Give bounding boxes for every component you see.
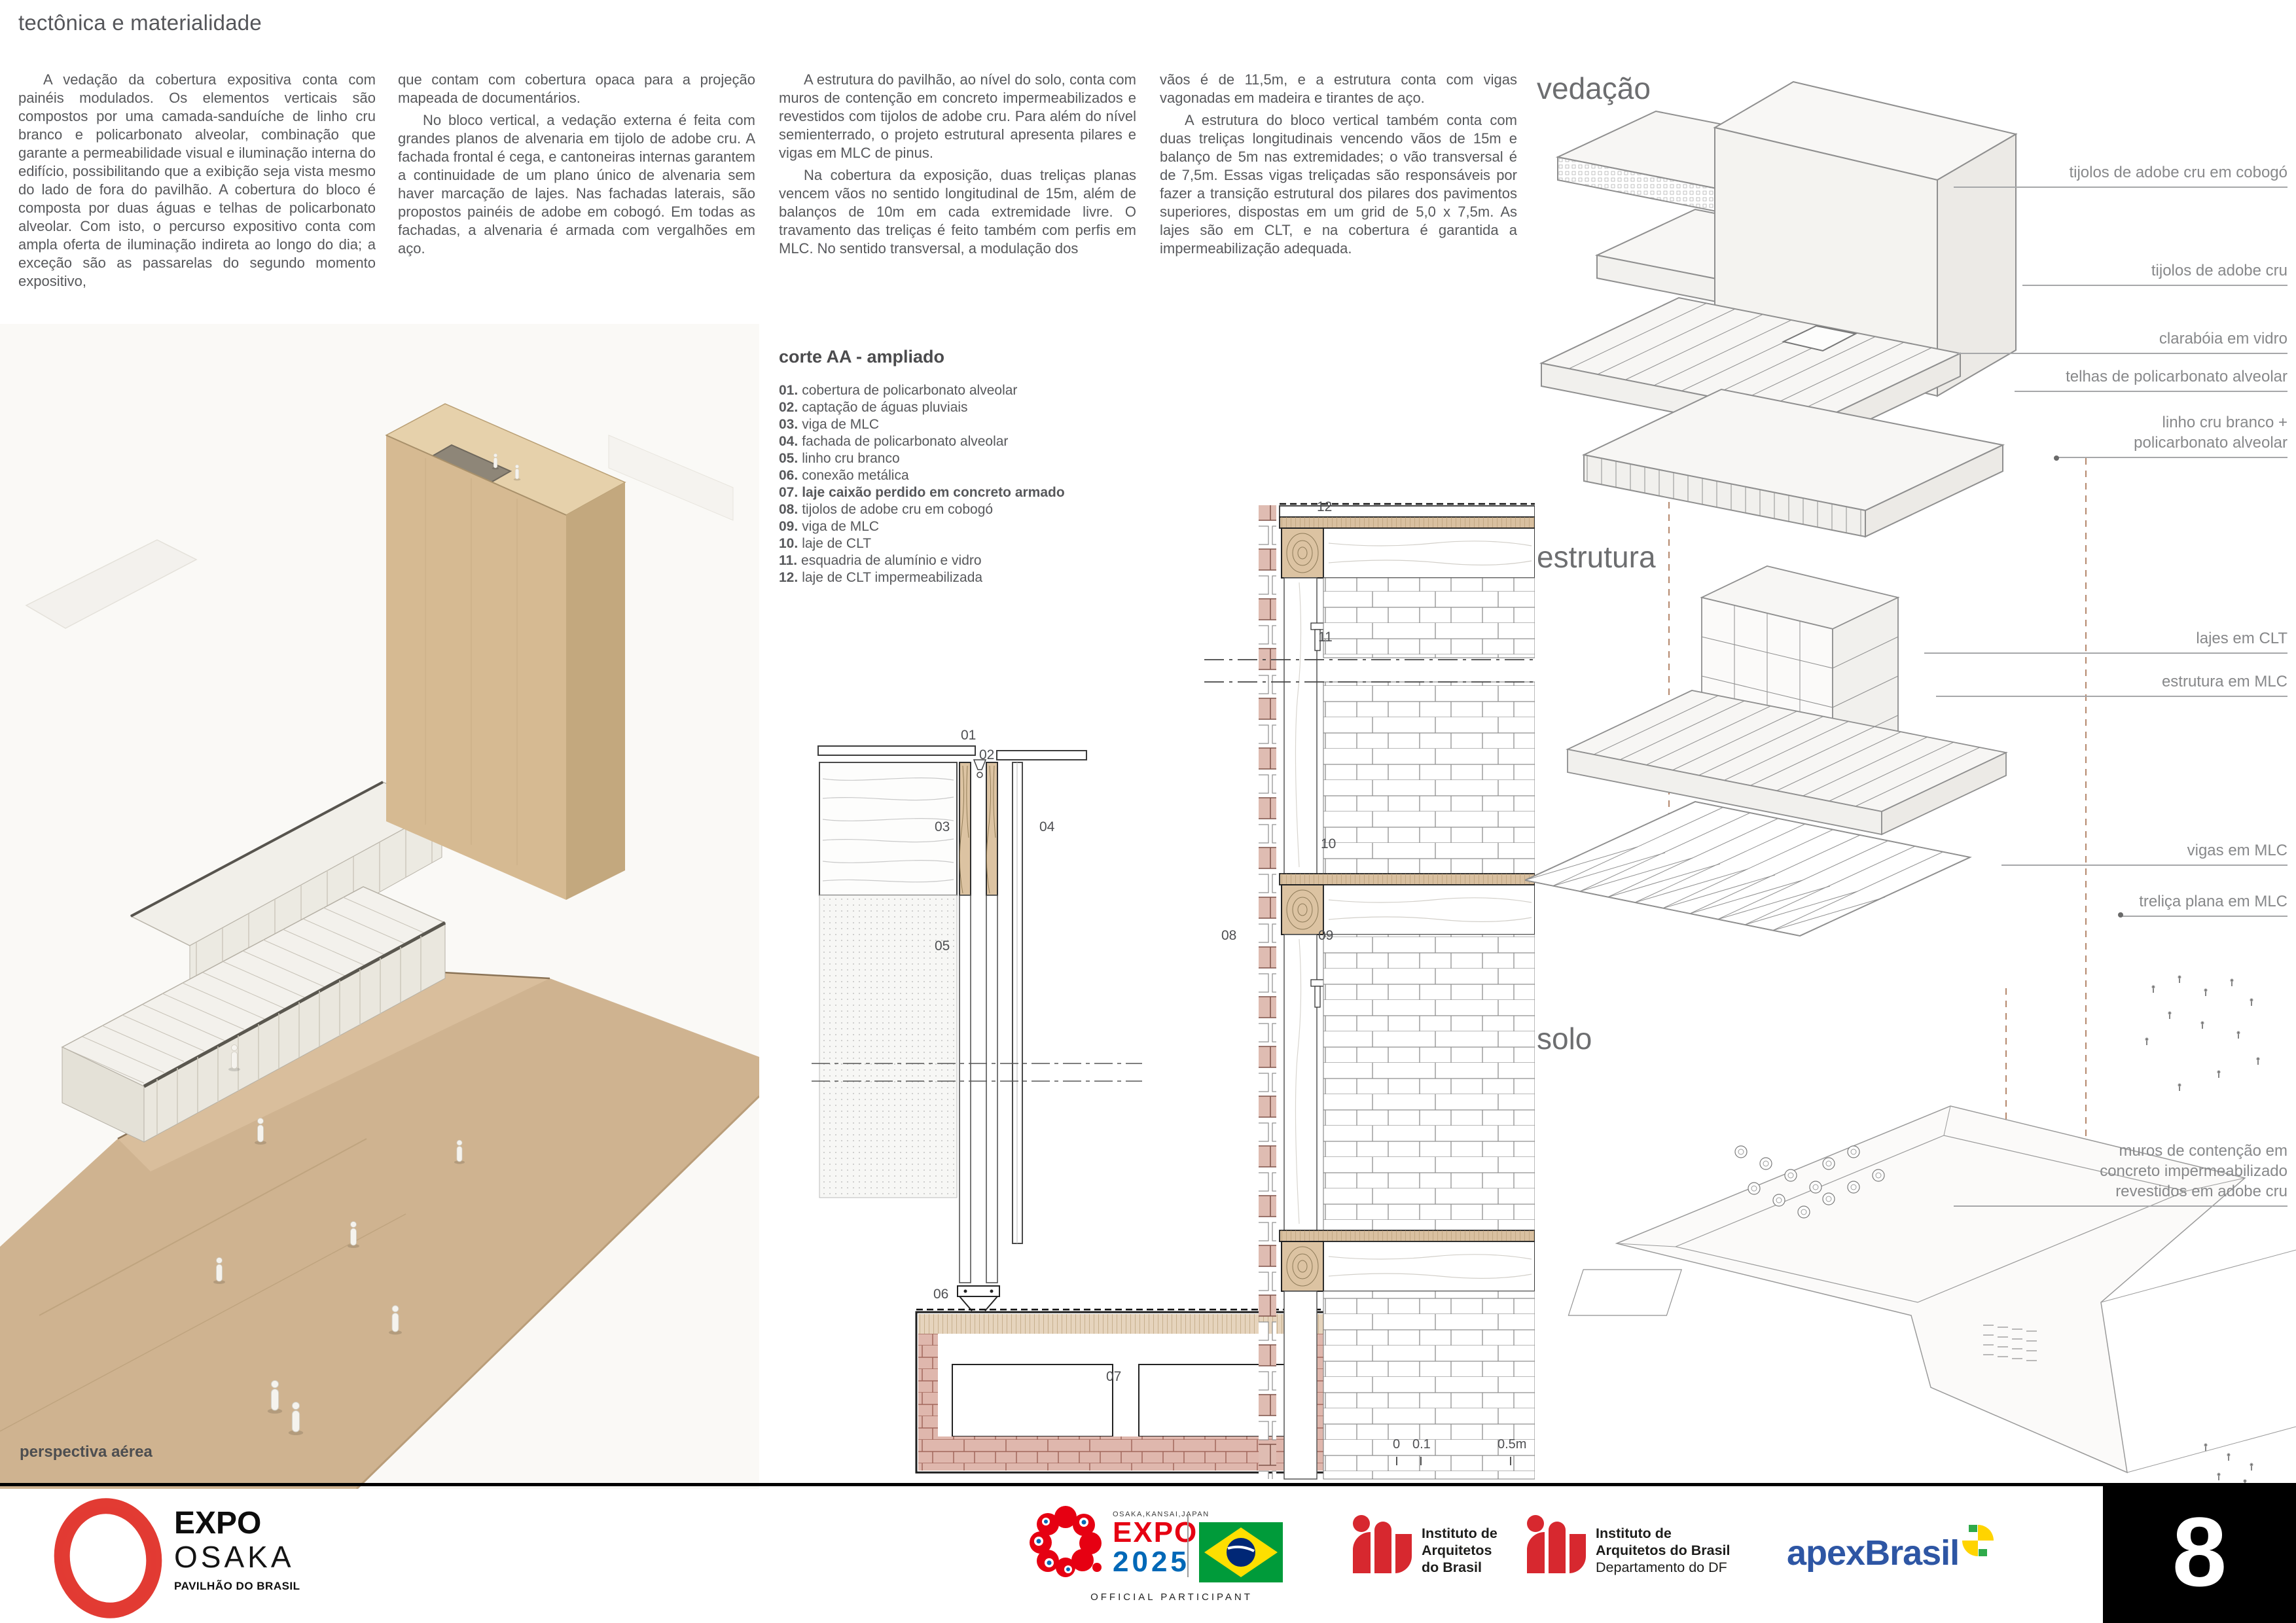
axon-label: estrutura em MLC xyxy=(1936,671,2287,697)
page-title: tectônica e materialidade xyxy=(18,10,262,35)
marker-07: 07 xyxy=(1106,1369,1121,1385)
official-participant-label: OFFICIAL PARTICIPANT xyxy=(1073,1592,1270,1603)
axon-heading-vedacao: vedação xyxy=(1537,71,1651,106)
expo-2025-year: 2025 xyxy=(1113,1547,1210,1577)
legend-item: 01.cobertura de policarbonato alveolar xyxy=(779,382,1145,399)
expo-osaka-title: EXPO xyxy=(174,1505,261,1541)
iab-df-wordmark: Instituto de Arquitetos do Brasil Depart… xyxy=(1596,1525,1730,1576)
apex-plus-icon xyxy=(1962,1522,1994,1559)
marker-09: 09 xyxy=(1318,928,1333,944)
scale-bar: 0 0.1 0.5m xyxy=(1388,1437,1538,1470)
expo-2025-wordmark: OSAKA,KANSAI,JAPAN EXPO 2025 xyxy=(1113,1510,1210,1577)
scale-zero: 0 xyxy=(1393,1437,1400,1452)
marker-10: 10 xyxy=(1321,836,1336,852)
text-column-2: que contam com cobertura opaca para a pr… xyxy=(398,71,755,258)
legend-item: 05.linho cru branco xyxy=(779,450,1145,467)
logo-divider xyxy=(1187,1514,1189,1577)
apex-brasil-wordmark: apexBrasil xyxy=(1787,1533,1959,1573)
expo-osaka-subtitle: OSAKA xyxy=(174,1539,295,1575)
paragraph: A estrutura do pavilhão, ao nível do sol… xyxy=(779,71,1136,162)
legend-item: 04.fachada de policarbonato alveolar xyxy=(779,433,1145,450)
marker-11: 11 xyxy=(1318,630,1333,645)
presentation-board: tectônica e materialidade A vedação da c… xyxy=(0,0,2296,1623)
paragraph: No bloco vertical, a vedação externa é f… xyxy=(398,111,755,258)
perspective-caption: perspectiva aérea xyxy=(20,1443,152,1461)
paragraph: vãos é de 11,5m, e a estrutura conta com… xyxy=(1160,71,1517,107)
section-drawing xyxy=(776,497,1535,1482)
perspective-render-panel xyxy=(0,324,759,1489)
text-column-1: A vedação da cobertura expositiva conta … xyxy=(18,71,376,291)
axon-label: vigas em MLC xyxy=(2001,840,2287,866)
exploded-axonometric xyxy=(1525,39,2296,1492)
axon-label: tijolos de adobe cru xyxy=(2022,260,2287,286)
leader-dot xyxy=(2054,455,2059,461)
text-column-3: A estrutura do pavilhão, ao nível do sol… xyxy=(779,71,1136,258)
expo-osaka-ring-icon xyxy=(46,1497,170,1619)
wood-tower xyxy=(386,404,625,900)
legend-item: 02.captação de águas pluviais xyxy=(779,399,1145,416)
footer-divider xyxy=(0,1483,2296,1486)
axon-label: clarabóia em vidro xyxy=(1957,329,2287,354)
estrutura-axon xyxy=(1525,566,2006,936)
section-title: corte AA - ampliado xyxy=(779,347,944,367)
brazil-flag-icon xyxy=(1199,1522,1283,1582)
axon-label: lajes em CLT xyxy=(1924,628,2287,654)
perspective-render xyxy=(0,324,759,1489)
text-column-4: vãos é de 11,5m, e a estrutura conta com… xyxy=(1160,71,1517,258)
paragraph: A estrutura do bloco vertical também con… xyxy=(1160,111,1517,258)
marker-12: 12 xyxy=(1317,499,1332,515)
axon-heading-solo: solo xyxy=(1537,1021,1592,1056)
legend-item: 06.conexão metálica xyxy=(779,467,1145,484)
iab-df-logo-icon xyxy=(1526,1514,1587,1575)
scale-half: 0.5m xyxy=(1498,1437,1526,1452)
iab-logo-icon xyxy=(1352,1514,1412,1575)
expo-2025-expo: EXPO xyxy=(1113,1518,1210,1547)
marker-05: 05 xyxy=(935,938,950,954)
marker-01: 01 xyxy=(961,728,976,743)
axon-label: treliça plana em MLC xyxy=(2119,891,2287,917)
axon-label: telhas de policarbonato alveolar xyxy=(2015,366,2287,392)
vedacao-axon xyxy=(1541,82,2016,537)
axon-label: tijolos de adobe cru em cobogó xyxy=(1954,162,2287,188)
marker-04: 04 xyxy=(1039,819,1054,835)
scale-one: 0.1 xyxy=(1412,1437,1431,1452)
paragraph: que contam com cobertura opaca para a pr… xyxy=(398,71,755,107)
marker-03: 03 xyxy=(935,819,950,835)
iab-wordmark: Instituto de Arquitetos do Brasil xyxy=(1422,1525,1498,1576)
facade-detail xyxy=(812,746,1142,1311)
paragraph: A vedação da cobertura expositiva conta … xyxy=(18,71,376,291)
marker-08: 08 xyxy=(1221,928,1236,944)
axon-heading-estrutura: estrutura xyxy=(1537,539,1656,575)
paragraph: Na cobertura da exposição, duas treliças… xyxy=(779,166,1136,258)
axon-label: muros de contenção emconcreto impermeabi… xyxy=(1954,1141,2287,1207)
marker-06: 06 xyxy=(933,1287,948,1302)
page-number: 8 xyxy=(2103,1483,2296,1623)
axon-label: linho cru branco +policarbonato alveolar xyxy=(2055,412,2287,458)
expo-2025-emblem-icon xyxy=(1029,1505,1102,1578)
expo-osaka-tagline: PAVILHÃO DO BRASIL xyxy=(174,1580,300,1593)
legend-item: 03.viga de MLC xyxy=(779,416,1145,433)
solo-axon xyxy=(1568,976,2296,1487)
marker-02: 02 xyxy=(979,747,994,763)
leader-dot xyxy=(2118,912,2123,918)
